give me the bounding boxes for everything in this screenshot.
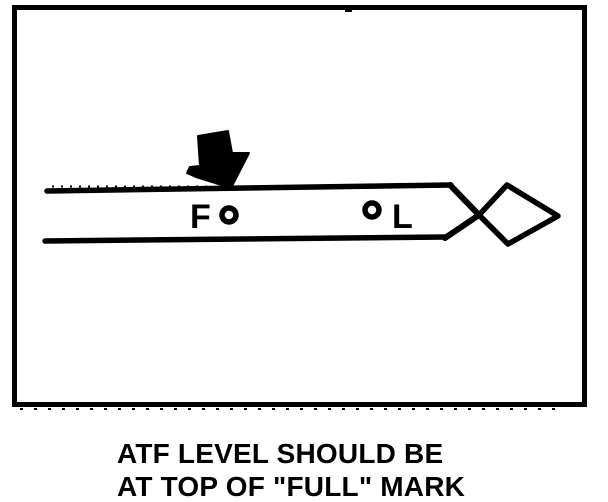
full-level-hole (222, 208, 236, 222)
full-mark-label: F (190, 198, 211, 236)
low-mark-label: L (392, 198, 413, 236)
caption-line-2: AT TOP OF "FULL" MARK (117, 470, 465, 502)
caption: ATF LEVEL SHOULD BE AT TOP OF "FULL" MAR… (117, 437, 465, 502)
caption-line-1: ATF LEVEL SHOULD BE (117, 437, 465, 470)
dipstick-neck-upper-diagonal (450, 185, 479, 215)
dipstick-blade (45, 185, 558, 244)
dipstick-neck-lower-diagonal (445, 215, 479, 238)
manual-figure-page: F L ATF LEVEL SHOULD BE AT TOP OF "FULL"… (0, 0, 608, 502)
down-arrow-icon (187, 131, 249, 188)
low-level-hole (365, 203, 379, 217)
dipstick-tip-loop (479, 185, 558, 244)
dipstick-diagram: F L (0, 0, 608, 502)
dipstick-markings: F L (190, 198, 413, 236)
dipstick-blade-bottom-edge (45, 237, 446, 241)
